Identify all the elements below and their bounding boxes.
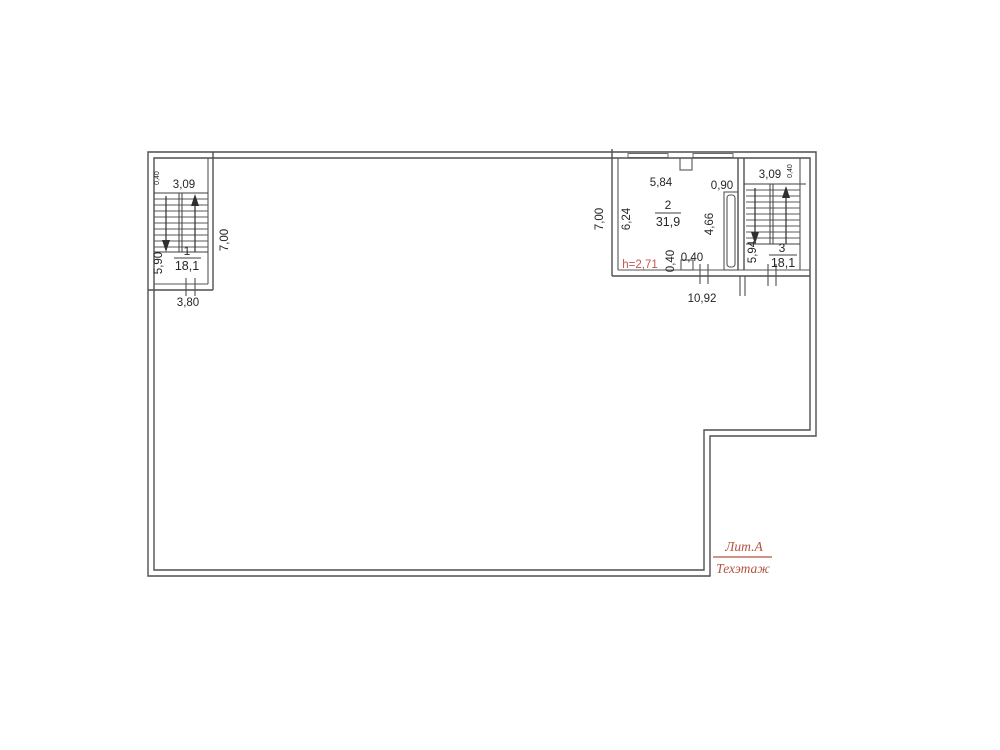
dim-stair1-length-left: 5,90 xyxy=(153,252,165,274)
dim-room2-gap-top-right: 0,90 xyxy=(711,180,733,192)
dim-room2-width-top: 5,84 xyxy=(650,177,673,189)
labels: 0,40 3,09 5,90 1 18,1 3,80 7,00 7,00 5,8… xyxy=(153,164,797,309)
room2-area: 31,9 xyxy=(656,215,680,229)
dim-room2-depth-left: 7,00 xyxy=(594,208,606,230)
floor-plan-canvas: 0,40 3,09 5,90 1 18,1 3,80 7,00 7,00 5,8… xyxy=(0,0,1000,750)
stair1-area: 18,1 xyxy=(175,259,199,273)
dim-stair3-width-top: 3,09 xyxy=(759,169,781,181)
vent-shaft xyxy=(724,192,738,270)
dim-stair1-depth-right: 7,00 xyxy=(219,229,231,251)
floor-label: Техэтаж xyxy=(716,561,770,576)
room2-door-ticks xyxy=(700,264,708,284)
dim-room2-niche-depth: 0,40 xyxy=(665,250,677,272)
dim-stair1-wall-top: 0,40 xyxy=(154,171,161,185)
room2-number: 2 xyxy=(665,198,672,212)
wall-stub-ticks xyxy=(740,276,745,296)
dim-stair3-wall-top: 0,40 xyxy=(787,164,794,178)
stair3-area: 18,1 xyxy=(771,256,795,270)
stair1-down-arrow xyxy=(162,196,170,252)
floor-plan-page: 0,40 3,09 5,90 1 18,1 3,80 7,00 7,00 5,8… xyxy=(0,0,1000,750)
dim-room2-length-right: 4,66 xyxy=(704,213,716,235)
stair3-number: 3 xyxy=(779,241,786,255)
dim-room2-length-left: 6,24 xyxy=(621,207,633,230)
stair1-number: 1 xyxy=(184,244,191,258)
title-annotation: Лит.А Техэтаж xyxy=(713,539,772,576)
stair1-door-ticks xyxy=(186,278,195,296)
top-wall-windows xyxy=(628,154,733,158)
stair3-up-arrow xyxy=(782,186,790,244)
dim-stair1-width-bottom: 3,80 xyxy=(177,297,199,309)
dim-room2-niche-width: 0,40 xyxy=(681,252,703,264)
liter-label: Лит.А xyxy=(724,539,763,554)
top-wall-pier xyxy=(680,158,692,170)
room2-height-note: h=2,71 xyxy=(622,259,658,271)
dim-room2-width-bottom: 10,92 xyxy=(688,293,717,305)
dim-stair1-width-top: 3,09 xyxy=(173,179,195,191)
dim-stair3-length-left: 5,94 xyxy=(747,240,759,263)
stair1-treads xyxy=(154,193,208,252)
